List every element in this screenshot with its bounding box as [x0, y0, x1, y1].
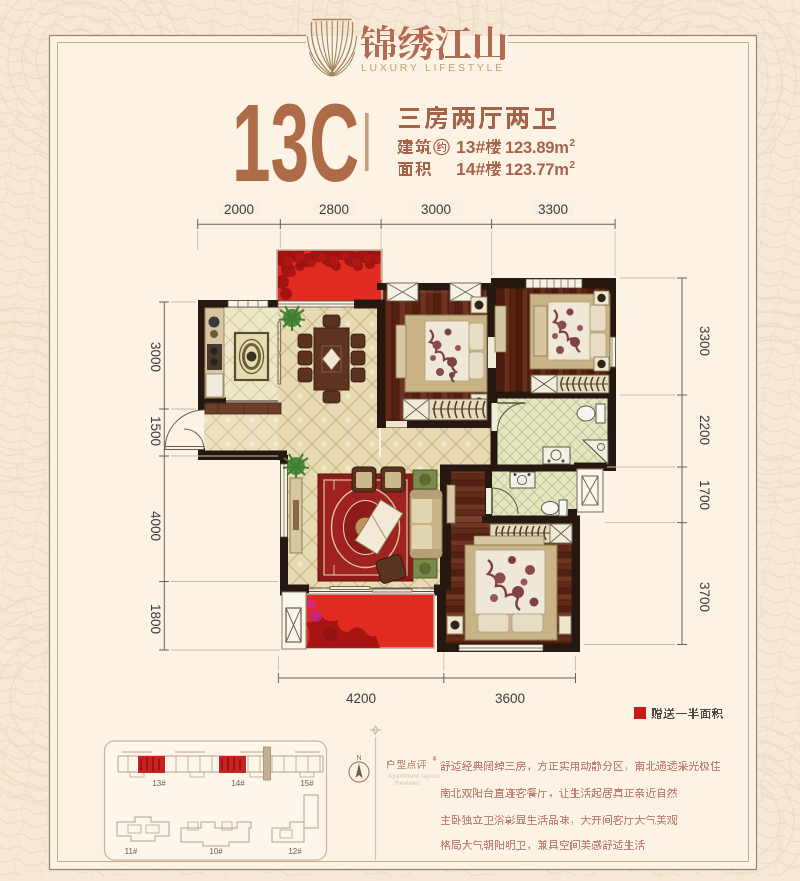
svg-text:Apartment layout: Apartment layout — [388, 774, 440, 780]
svg-text:3600: 3600 — [495, 691, 525, 706]
svg-text:15#: 15# — [300, 779, 314, 788]
svg-text:2000: 2000 — [224, 202, 254, 217]
svg-text:1700: 1700 — [697, 480, 712, 510]
svg-text:10#: 10# — [209, 847, 223, 856]
svg-text:N: N — [356, 755, 361, 762]
svg-text:2: 2 — [570, 160, 576, 171]
svg-text:12#: 12# — [288, 847, 302, 856]
svg-text:2: 2 — [570, 138, 576, 149]
svg-text:LUXURY LIFESTYLE: LUXURY LIFESTYLE — [361, 62, 505, 74]
svg-text:3000: 3000 — [421, 202, 451, 217]
svg-text:14#: 14# — [456, 159, 485, 179]
svg-text:13#: 13# — [152, 779, 166, 788]
svg-text:2200: 2200 — [697, 415, 712, 445]
svg-text:4000: 4000 — [148, 511, 163, 541]
svg-text:123.77m: 123.77m — [505, 161, 569, 179]
svg-text:13#: 13# — [456, 137, 485, 157]
svg-text:3300: 3300 — [538, 202, 568, 217]
svg-text:2800: 2800 — [319, 202, 349, 217]
svg-text:3000: 3000 — [148, 342, 163, 372]
svg-text:123.89m: 123.89m — [505, 139, 569, 157]
svg-text:4200: 4200 — [346, 691, 376, 706]
svg-text:3700: 3700 — [697, 582, 712, 612]
svg-text:14#: 14# — [231, 779, 245, 788]
svg-text:Reviews: Reviews — [395, 781, 420, 787]
svg-text:11#: 11# — [125, 847, 138, 856]
svg-text:3300: 3300 — [697, 326, 712, 356]
svg-text:1500: 1500 — [148, 416, 163, 446]
svg-text:1800: 1800 — [148, 604, 163, 634]
svg-text:13C: 13C — [232, 83, 359, 205]
